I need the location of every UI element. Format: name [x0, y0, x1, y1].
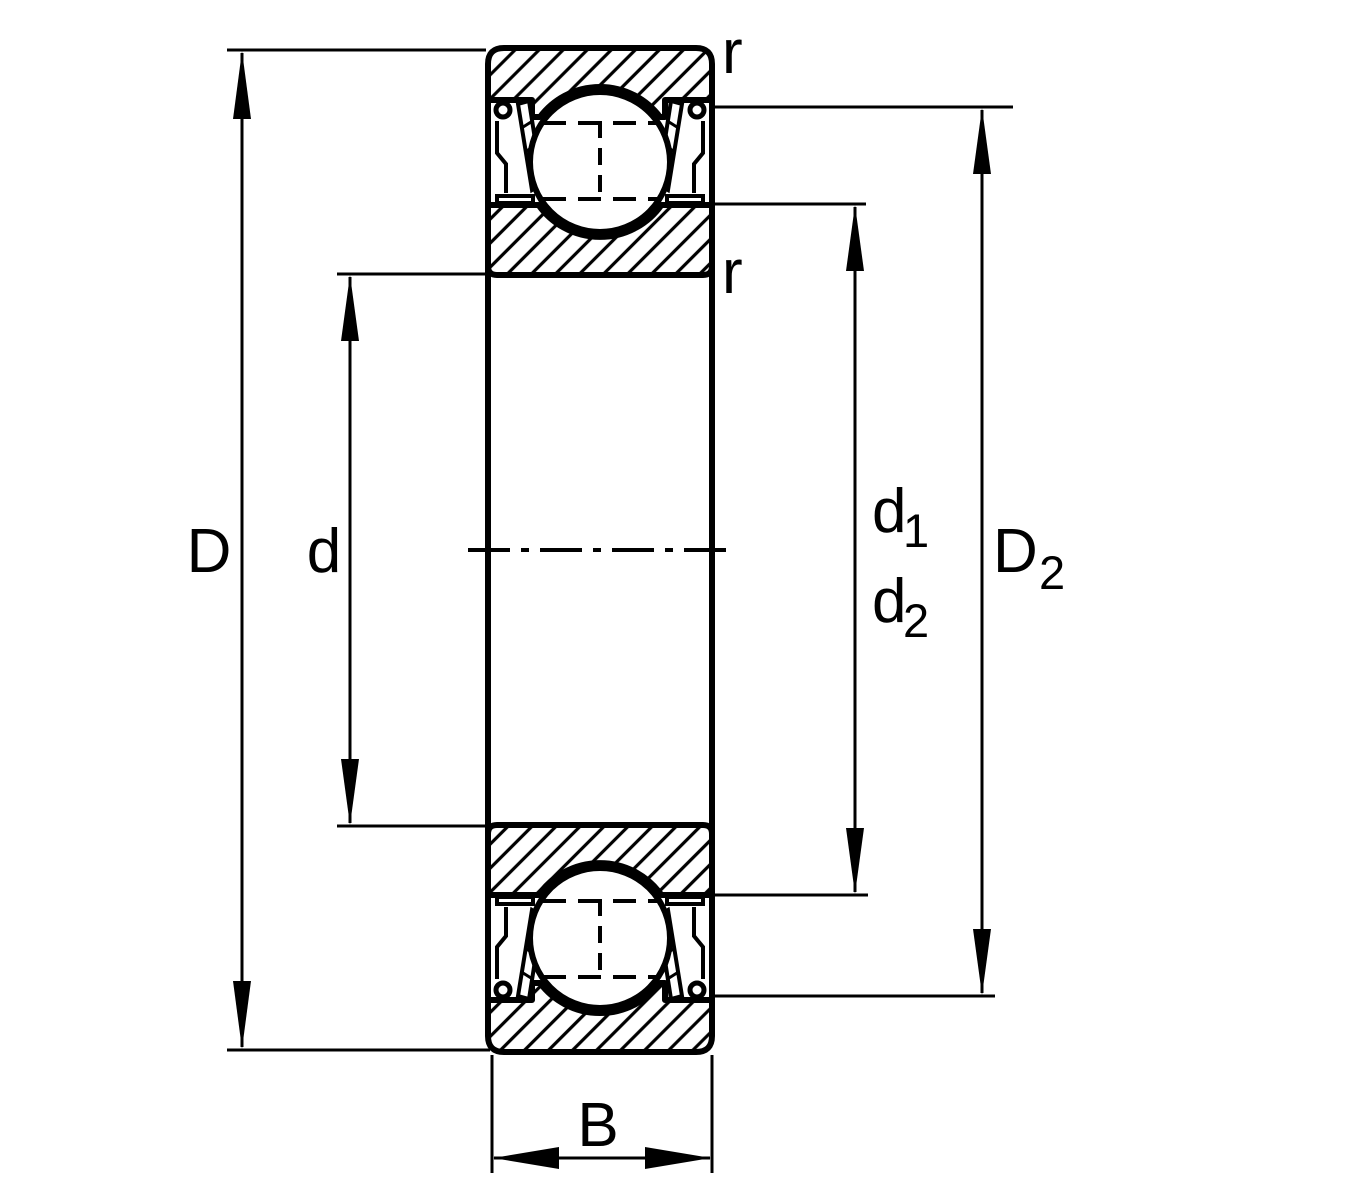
corner-radius-label-top: r — [722, 18, 743, 87]
dimension-D2 — [714, 107, 1013, 996]
arrowhead-up — [846, 205, 864, 271]
dimension-d — [337, 274, 486, 826]
shield-stem — [497, 121, 506, 193]
shield-stem — [694, 907, 703, 979]
dimension-label-d2-subscript: 2 — [903, 594, 929, 647]
arrowhead-up — [973, 108, 991, 174]
arrowhead-up — [233, 51, 251, 119]
arrowhead-up — [341, 275, 359, 341]
dimension-label-d: d — [307, 517, 341, 586]
dimension-label-D2-subscript: 2 — [1039, 546, 1065, 599]
arrowhead-down — [846, 828, 864, 894]
dimension-d1-d2 — [714, 204, 868, 895]
dimension-label-d2-base: d — [872, 567, 906, 636]
shield-stem — [694, 121, 703, 193]
dimension-label-d1-base: d — [872, 477, 906, 546]
shield-foot — [497, 897, 533, 904]
arrowhead-right — [645, 1147, 711, 1169]
shield-stem — [497, 907, 506, 979]
shield-foot — [667, 196, 703, 203]
shield-foot — [497, 196, 533, 203]
arrowhead-left — [493, 1147, 559, 1169]
arrowhead-down — [341, 759, 359, 825]
shield-anchor-curl — [690, 103, 704, 117]
arrowhead-down — [233, 981, 251, 1049]
corner-radius-label-bottom: r — [722, 238, 743, 307]
shield-anchor-curl — [496, 103, 510, 117]
bearing-cross-section — [468, 48, 735, 1052]
shield-foot — [667, 897, 703, 904]
shield-anchor-curl — [690, 983, 704, 997]
shield-anchor-curl — [496, 983, 510, 997]
dimension-D — [227, 50, 490, 1050]
dimension-label-D2-base: D — [993, 517, 1038, 586]
arrowhead-down — [973, 929, 991, 995]
dimension-label-B: B — [577, 1091, 618, 1160]
dimension-label-d1-subscript: 1 — [903, 504, 929, 557]
bearing-dimension-drawing: D d d 1 d 2 D 2 B r r — [0, 0, 1350, 1200]
dimension-label-D: D — [187, 517, 232, 586]
drawing-canvas: D d d 1 d 2 D 2 B r r — [0, 0, 1350, 1200]
